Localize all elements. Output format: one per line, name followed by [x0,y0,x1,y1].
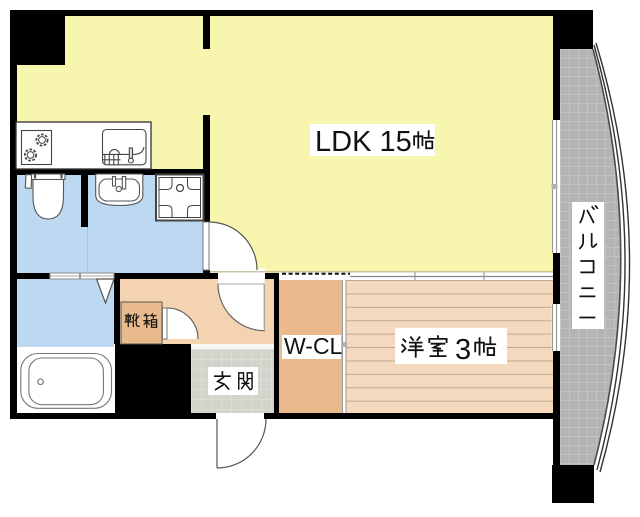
svg-text:W-CL: W-CL [284,333,343,359]
svg-text:LDK 15: LDK 15 [315,126,412,158]
svg-text:3: 3 [455,334,471,366]
